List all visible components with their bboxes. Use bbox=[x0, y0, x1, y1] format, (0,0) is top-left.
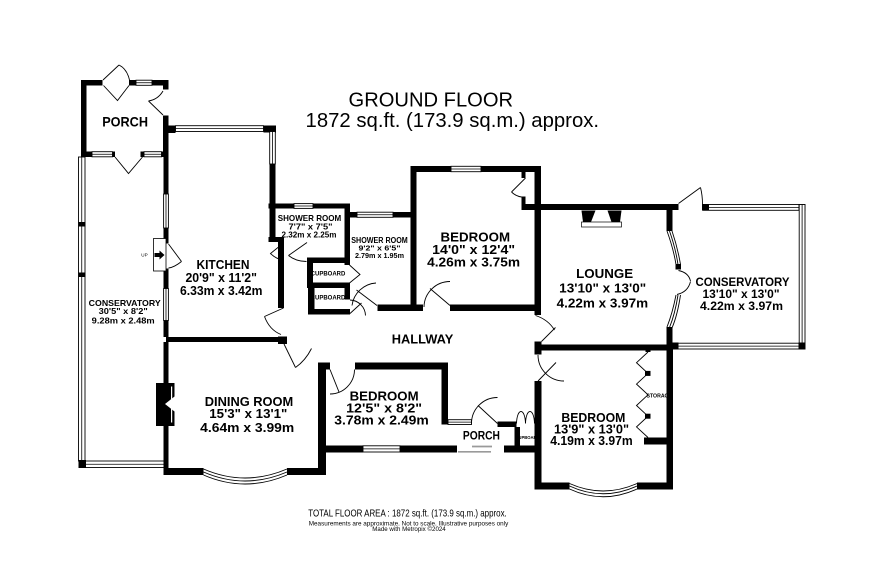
svg-text:TOTAL FLOOR AREA : 1872 sq.ft.: TOTAL FLOOR AREA : 1872 sq.ft. (173.9 sq… bbox=[308, 509, 507, 520]
svg-text:4.64m x 3.99m: 4.64m x 3.99m bbox=[200, 420, 294, 435]
svg-text:4.19m x 3.97m: 4.19m x 3.97m bbox=[550, 433, 633, 448]
svg-text:2.32m x 2.25m: 2.32m x 2.25m bbox=[282, 231, 337, 240]
svg-text:STORAGE: STORAGE bbox=[647, 394, 673, 400]
svg-text:UP: UP bbox=[141, 253, 147, 258]
svg-text:CONSERVATORY: CONSERVATORY bbox=[696, 275, 790, 289]
svg-text:4.26m x 3.75m: 4.26m x 3.75m bbox=[427, 255, 520, 270]
svg-text:1872 sq.ft. (173.9 sq.m.) appr: 1872 sq.ft. (173.9 sq.m.) approx. bbox=[306, 109, 600, 132]
svg-text:HALLWAY: HALLWAY bbox=[392, 331, 454, 346]
svg-text:CUPBOARD: CUPBOARD bbox=[311, 296, 346, 302]
svg-text:2.79m x 1.95m: 2.79m x 1.95m bbox=[355, 251, 404, 260]
svg-text:9.28m x 2.48m: 9.28m x 2.48m bbox=[92, 316, 155, 325]
svg-text:3.78m x 2.49m: 3.78m x 2.49m bbox=[334, 413, 429, 428]
svg-text:6.33m x 3.42m: 6.33m x 3.42m bbox=[180, 283, 263, 298]
svg-text:30'5" x 8'2": 30'5" x 8'2" bbox=[99, 307, 148, 316]
svg-text:PORCH: PORCH bbox=[463, 431, 500, 443]
svg-text:4.22m x 3.97m: 4.22m x 3.97m bbox=[557, 295, 649, 310]
svg-text:LOUNGE: LOUNGE bbox=[576, 266, 633, 281]
svg-text:Made with Metropix ©2024: Made with Metropix ©2024 bbox=[372, 526, 446, 533]
svg-text:SHOWER ROOM: SHOWER ROOM bbox=[278, 213, 342, 223]
svg-text:13'10" x 13'0": 13'10" x 13'0" bbox=[559, 280, 646, 295]
svg-text:4.22m x 3.97m: 4.22m x 3.97m bbox=[700, 301, 783, 313]
svg-text:13'10" x 13'0": 13'10" x 13'0" bbox=[703, 289, 780, 301]
svg-text:CUPBOARD: CUPBOARD bbox=[311, 272, 346, 278]
svg-text:PORCH: PORCH bbox=[102, 114, 148, 130]
